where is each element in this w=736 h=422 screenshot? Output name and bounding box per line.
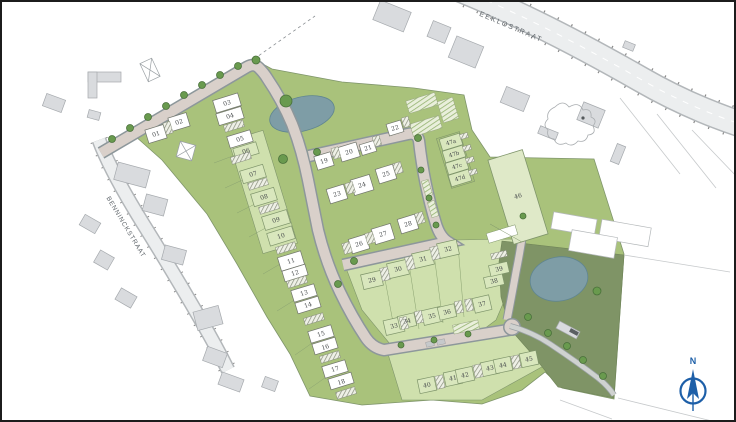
north-label: N xyxy=(690,356,697,366)
site-plan-canvas: 01 02 03 04 05 06 07 08 09 10 11 12 13 1… xyxy=(0,0,736,422)
site-plan-map: 01 02 03 04 05 06 07 08 09 10 11 12 13 1… xyxy=(2,2,736,422)
north-arrow-icon xyxy=(681,369,706,411)
